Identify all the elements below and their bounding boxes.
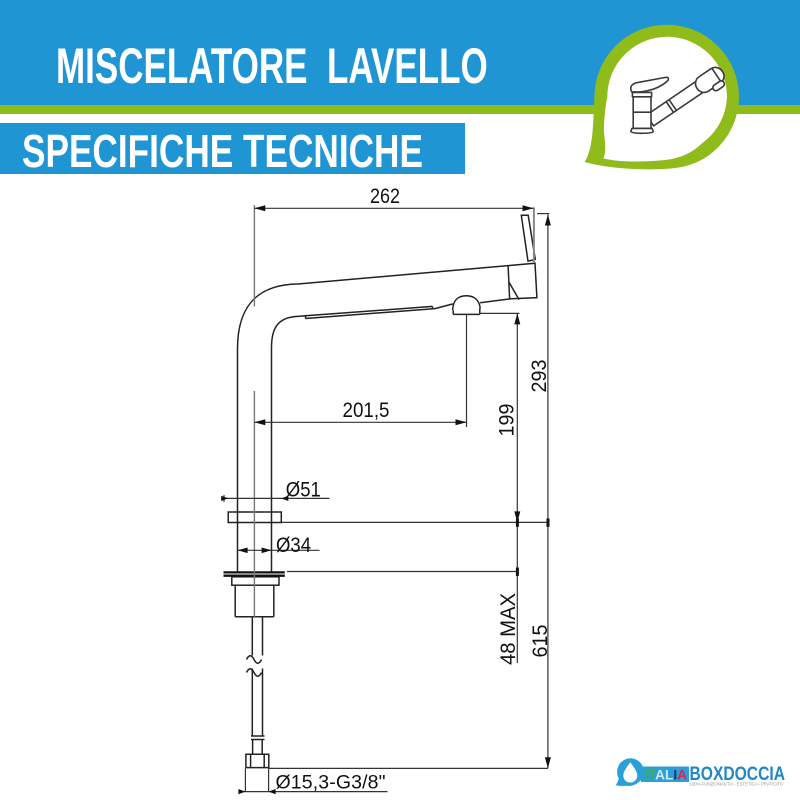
svg-text:201,5: 201,5 — [343, 399, 390, 422]
svg-text:615: 615 — [529, 625, 552, 658]
svg-text:48 MAX: 48 MAX — [497, 593, 520, 665]
svg-text:Ø51: Ø51 — [286, 479, 321, 502]
svg-text:Ø34: Ø34 — [276, 534, 311, 557]
svg-text:293: 293 — [528, 360, 551, 393]
svg-text:Ø15,3-G3/8": Ø15,3-G3/8" — [276, 772, 386, 794]
svg-text:ITALIA: ITALIA — [644, 767, 687, 783]
svg-text:100% FUNZIONALITA' - ESTETICA: 100% FUNZIONALITA' - ESTETICA - PRATICIT… — [690, 781, 784, 786]
svg-text:262: 262 — [370, 185, 400, 208]
svg-text:199: 199 — [496, 404, 519, 437]
